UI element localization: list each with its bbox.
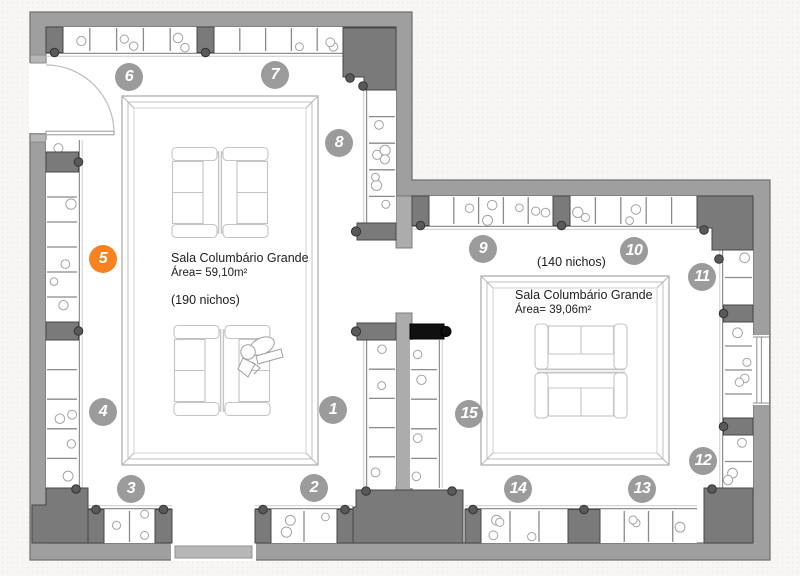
marker-11[interactable]: 11 bbox=[688, 263, 716, 291]
marker-14[interactable]: 14 bbox=[504, 475, 532, 503]
door-jamb-bottom bbox=[31, 134, 47, 142]
marker-7[interactable]: 7 bbox=[261, 61, 289, 89]
marker-1[interactable]: 1 bbox=[319, 396, 347, 424]
marker-6[interactable]: 6 bbox=[115, 63, 143, 91]
marker-3[interactable]: 3 bbox=[117, 475, 145, 503]
door-leaf bbox=[46, 131, 114, 135]
marker-12[interactable]: 12 bbox=[689, 447, 717, 475]
room-label-small: Sala Columbário Grande Área= 39,06m² bbox=[515, 287, 653, 318]
marker-9[interactable]: 9 bbox=[469, 235, 497, 263]
divider-wall-upper bbox=[396, 196, 412, 248]
room-niche-count: (190 nichos) bbox=[171, 292, 309, 308]
pier-passage-south-left bbox=[357, 323, 396, 340]
marker-13[interactable]: 13 bbox=[628, 475, 656, 503]
pier-bottom-middle bbox=[353, 490, 463, 543]
marker-10[interactable]: 10 bbox=[620, 237, 648, 265]
south-entrance-opening bbox=[171, 542, 256, 561]
pier-bottom-right bbox=[704, 488, 753, 543]
room-name: Sala Columbário Grande bbox=[171, 250, 309, 266]
divider-wall-lower bbox=[396, 313, 412, 490]
pier-passage-north-left bbox=[357, 223, 396, 240]
room-niche-count-small: (140 nichos) bbox=[537, 254, 606, 270]
room-name: Sala Columbário Grande bbox=[515, 287, 653, 303]
room-label-large: Sala Columbário Grande Área= 59,10m² (19… bbox=[171, 250, 309, 308]
door-jamb-top bbox=[31, 55, 47, 63]
marker-2[interactable]: 2 bbox=[300, 474, 328, 502]
floor-plan-canvas: Sala Columbário Grande Área= 59,10m² (19… bbox=[0, 0, 800, 576]
window-right-wall bbox=[752, 335, 769, 405]
pier-passage-south-right-black bbox=[410, 324, 444, 339]
marker-5-highlighted[interactable]: 5 bbox=[89, 245, 117, 273]
room-area: Área= 59,10m² bbox=[171, 266, 309, 281]
room-area: Área= 39,06m² bbox=[515, 303, 653, 318]
marker-8[interactable]: 8 bbox=[325, 129, 353, 157]
marker-4[interactable]: 4 bbox=[89, 398, 117, 426]
marker-15[interactable]: 15 bbox=[455, 400, 483, 428]
